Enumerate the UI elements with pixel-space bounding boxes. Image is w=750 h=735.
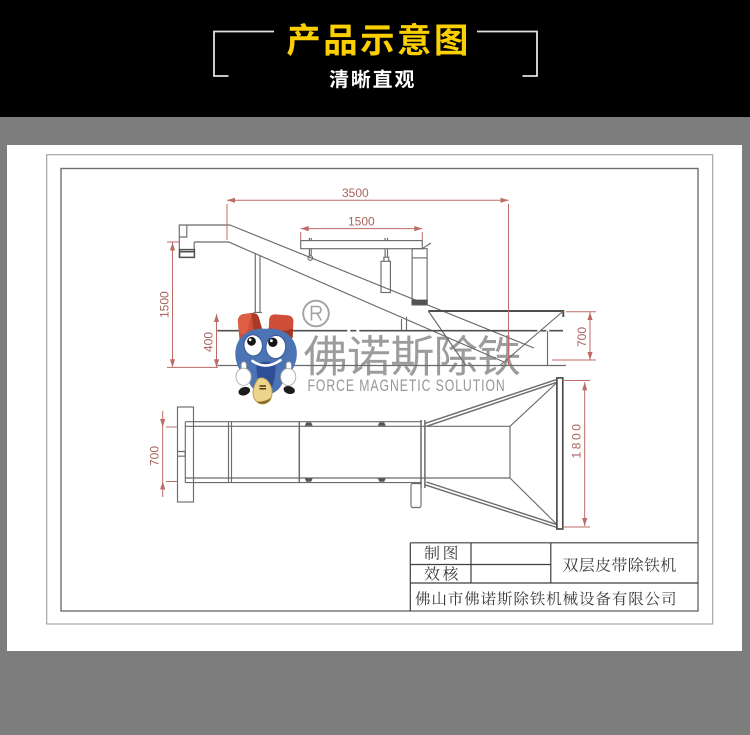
svg-text:1500: 1500 — [348, 215, 375, 229]
svg-text:700: 700 — [148, 446, 162, 466]
svg-text:1800: 1800 — [570, 421, 584, 458]
svg-text:1500: 1500 — [158, 291, 172, 318]
svg-text:400: 400 — [202, 332, 216, 352]
svg-text:3500: 3500 — [342, 186, 369, 200]
svg-text:FORCE MAGNETIC SOLUTION: FORCE MAGNETIC SOLUTION — [308, 377, 506, 395]
svg-text:700: 700 — [575, 327, 589, 347]
